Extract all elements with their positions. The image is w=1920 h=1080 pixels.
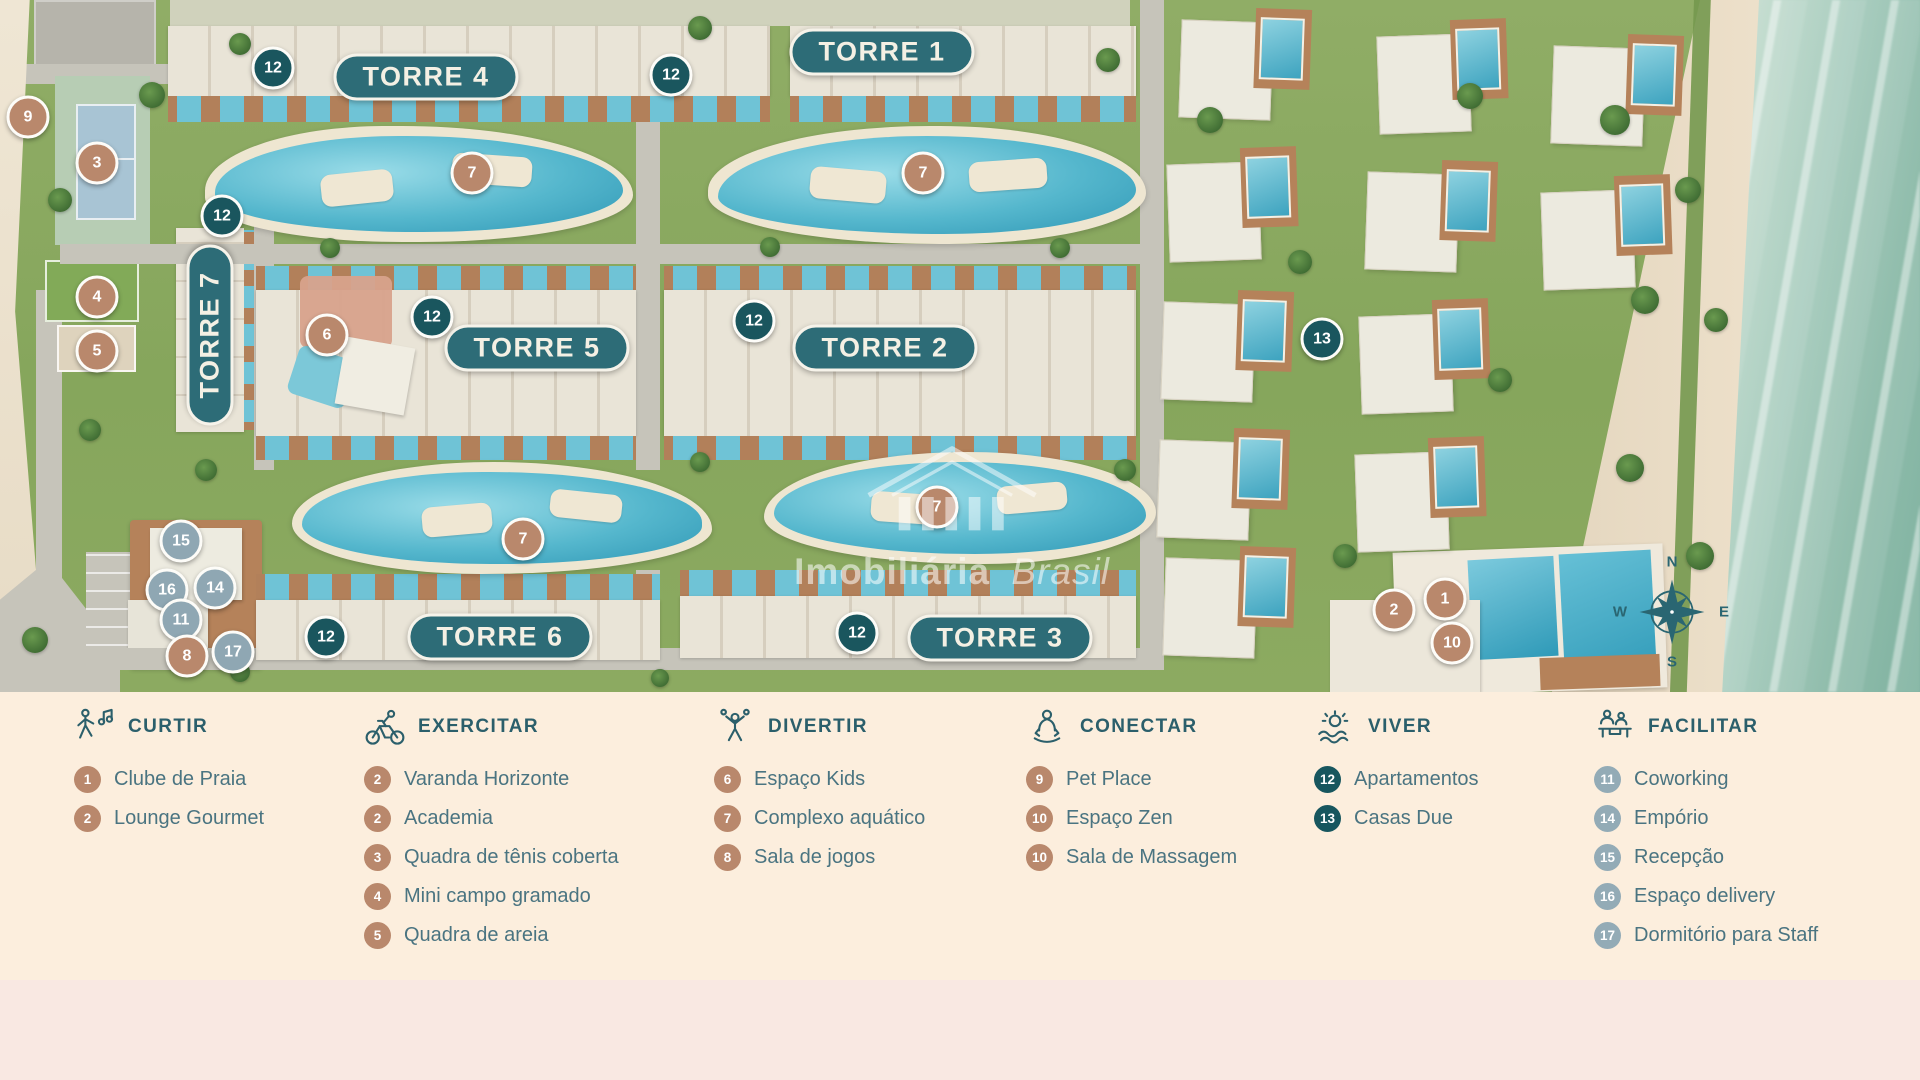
legend-badge-10: 10 xyxy=(1026,805,1053,832)
map-marker-10: 10 xyxy=(1431,622,1474,665)
legend-items: 2Varanda Horizonte2Academia3Quadra de tê… xyxy=(364,766,619,949)
legend-badge-3: 3 xyxy=(364,844,391,871)
legend-badge-11: 11 xyxy=(1594,766,1621,793)
legend-item: 16Espaço delivery xyxy=(1594,883,1818,910)
legend-title: FACILITAR xyxy=(1648,716,1758,738)
legend-items: 12Apartamentos13Casas Due xyxy=(1314,766,1479,832)
legend-title: CONECTAR xyxy=(1080,716,1197,738)
legend-badge-9: 9 xyxy=(1026,766,1053,793)
map-marker-7: 7 xyxy=(502,518,545,561)
aquatic-complex-deck xyxy=(292,462,712,574)
map-marker-5: 5 xyxy=(76,330,119,373)
legend-badge-13: 13 xyxy=(1314,805,1341,832)
legend-item: 9Pet Place xyxy=(1026,766,1237,793)
legend-item: 1Clube de Praia xyxy=(74,766,264,793)
aquatic-complex-deck xyxy=(764,452,1156,564)
casa-due-house xyxy=(1156,425,1310,555)
map-marker-7: 7 xyxy=(916,486,959,529)
lagoon-pool xyxy=(302,472,702,564)
legend-item-label: Pet Place xyxy=(1066,768,1152,791)
legend-title: EXERCITAR xyxy=(418,716,539,738)
map-marker-17: 17 xyxy=(212,631,255,674)
legend-item-label: Apartamentos xyxy=(1354,768,1479,791)
legend-badge-2: 2 xyxy=(364,766,391,793)
palm-tree xyxy=(1096,48,1120,72)
road-vertical-east xyxy=(1140,0,1164,670)
legend-section-conectar: CONECTAR9Pet Place10Espaço Zen10Sala de … xyxy=(1026,706,1237,871)
legend-items: 9Pet Place10Espaço Zen10Sala de Massagem xyxy=(1026,766,1237,871)
map-marker-12: 12 xyxy=(201,195,244,238)
palm-tree xyxy=(139,82,165,108)
legend-badge-14: 14 xyxy=(1594,805,1621,832)
compass-south-label: S xyxy=(1667,654,1677,671)
palm-tree xyxy=(690,452,710,472)
legend-section-facilitar: FACILITAR11Coworking14Empório15Recepção1… xyxy=(1594,706,1818,949)
legend-items: 11Coworking14Empório15Recepção16Espaço d… xyxy=(1594,766,1818,949)
tower-pill: TORRE 5 xyxy=(444,325,629,372)
casa-due-house xyxy=(1358,297,1512,427)
palm-tree xyxy=(229,33,251,55)
legend-item-label: Academia xyxy=(404,807,493,830)
compass-west-label: W xyxy=(1613,604,1627,621)
map-marker-4: 4 xyxy=(76,276,119,319)
map-marker-8: 8 xyxy=(166,635,209,678)
legend-badge-7: 7 xyxy=(714,805,741,832)
legend-item-label: Clube de Praia xyxy=(114,768,246,791)
juggler-icon xyxy=(714,706,756,748)
legend-item-label: Sala de Massagem xyxy=(1066,846,1237,869)
legend-item: 8Sala de jogos xyxy=(714,844,925,871)
legend-item-label: Empório xyxy=(1634,807,1708,830)
palm-tree xyxy=(320,238,340,258)
casa-due-house xyxy=(1540,173,1694,303)
tower-pill: TORRE 1 xyxy=(789,29,974,76)
map-marker-2: 2 xyxy=(1373,589,1416,632)
map-marker-12: 12 xyxy=(305,616,348,659)
legend-item: 15Recepção xyxy=(1594,844,1818,871)
casa-due-house xyxy=(1376,17,1530,147)
legend-item-label: Lounge Gourmet xyxy=(114,807,264,830)
legend-item-label: Sala de jogos xyxy=(754,846,875,869)
legend-item-label: Coworking xyxy=(1634,768,1728,791)
meditation-icon xyxy=(1026,706,1068,748)
legend-header: VIVER xyxy=(1314,706,1479,748)
entrance-building xyxy=(34,0,156,68)
legend-item: 10Sala de Massagem xyxy=(1026,844,1237,871)
legend-badge-16: 16 xyxy=(1594,883,1621,910)
concierge-icon xyxy=(1594,706,1636,748)
legend-item: 14Empório xyxy=(1594,805,1818,832)
legend-item-label: Recepção xyxy=(1634,846,1724,869)
palm-tree xyxy=(1457,83,1483,109)
palm-tree xyxy=(1704,308,1728,332)
road-vertical-center-a xyxy=(636,120,660,470)
map-marker-12: 12 xyxy=(411,296,454,339)
legend-item: 3Quadra de tênis coberta xyxy=(364,844,619,871)
legend-badge-12: 12 xyxy=(1314,766,1341,793)
compass-star-icon xyxy=(1636,576,1708,648)
casa-due-house xyxy=(1364,157,1518,287)
legend-header: DIVERTIR xyxy=(714,706,925,748)
tower-pill: TORRE 3 xyxy=(907,615,1092,662)
casa-due-house xyxy=(1354,435,1508,565)
palm-tree xyxy=(1050,238,1070,258)
legend-item: 12Apartamentos xyxy=(1314,766,1479,793)
legend-section-exercitar: EXERCITAR2Varanda Horizonte2Academia3Qua… xyxy=(364,706,619,949)
pool-strip-torre2-up xyxy=(664,266,1136,290)
legend-title: DIVERTIR xyxy=(768,716,868,738)
legend-header: CONECTAR xyxy=(1026,706,1237,748)
map-marker-7: 7 xyxy=(451,152,494,195)
lagoon-pool xyxy=(774,462,1146,554)
legend-item: 5Quadra de areia xyxy=(364,922,619,949)
legend-item: 17Dormitório para Staff xyxy=(1594,922,1818,949)
compass-east-label: E xyxy=(1719,604,1729,621)
palm-tree xyxy=(22,627,48,653)
sun-waves-icon xyxy=(1314,706,1356,748)
compass-north-label: N xyxy=(1667,554,1678,571)
dancing-person-icon xyxy=(74,706,116,748)
legend-items: 1Clube de Praia2Lounge Gourmet xyxy=(74,766,264,832)
aquatic-complex-deck xyxy=(205,126,633,242)
palm-tree xyxy=(1114,459,1136,481)
legend-item-label: Complexo aquático xyxy=(754,807,925,830)
legend-item: 2Lounge Gourmet xyxy=(74,805,264,832)
legend-item-label: Varanda Horizonte xyxy=(404,768,569,791)
map-marker-9: 9 xyxy=(7,96,50,139)
map-marker-13: 13 xyxy=(1301,318,1344,361)
palm-tree xyxy=(688,16,712,40)
map-marker-12: 12 xyxy=(836,612,879,655)
lagoon-pool xyxy=(215,136,623,232)
map-marker-12: 12 xyxy=(252,47,295,90)
beach-club-pool-small xyxy=(1467,556,1558,660)
palm-tree xyxy=(1197,107,1223,133)
legend-badge-17: 17 xyxy=(1594,922,1621,949)
kids-pergola xyxy=(335,336,416,415)
pool-strip-torre6 xyxy=(256,574,660,600)
legend-item: 13Casas Due xyxy=(1314,805,1479,832)
map-marker-14: 14 xyxy=(194,567,237,610)
palm-tree xyxy=(1616,454,1644,482)
legend-item-label: Espaço delivery xyxy=(1634,885,1775,908)
legend-item: 4Mini campo gramado xyxy=(364,883,619,910)
legend-item-label: Mini campo gramado xyxy=(404,885,591,908)
casa-due-house xyxy=(1550,31,1704,161)
legend-item-label: Quadra de tênis coberta xyxy=(404,846,619,869)
legend-item-label: Casas Due xyxy=(1354,807,1453,830)
palm-tree xyxy=(760,237,780,257)
legend-item: 11Coworking xyxy=(1594,766,1818,793)
casa-due-house xyxy=(1160,287,1314,417)
legend-title: CURTIR xyxy=(128,716,208,738)
legend-item-label: Dormitório para Staff xyxy=(1634,924,1818,947)
legend: CURTIR1Clube de Praia2Lounge GourmetEXER… xyxy=(0,692,1920,980)
palm-tree xyxy=(1631,286,1659,314)
legend-header: CURTIR xyxy=(74,706,264,748)
tower-pill: TORRE 4 xyxy=(333,54,518,101)
legend-badge-8: 8 xyxy=(714,844,741,871)
tower-pill: TORRE 7 xyxy=(187,244,234,425)
map-marker-7: 7 xyxy=(902,152,945,195)
pool-strip-torre3 xyxy=(680,570,1136,596)
legend-section-viver: VIVER12Apartamentos13Casas Due xyxy=(1314,706,1479,832)
top-promenade xyxy=(170,0,1130,26)
pool-strip-torre1 xyxy=(790,96,1136,122)
legend-item-label: Espaço Zen xyxy=(1066,807,1173,830)
map-marker-12: 12 xyxy=(733,300,776,343)
legend-item: 10Espaço Zen xyxy=(1026,805,1237,832)
tower-pill: TORRE 2 xyxy=(792,325,977,372)
masterplan-page: Imobiliária Brasil N E S W xyxy=(0,0,1920,1080)
legend-header: FACILITAR xyxy=(1594,706,1818,748)
legend-title: VIVER xyxy=(1368,716,1432,738)
palm-tree xyxy=(1488,368,1512,392)
legend-badge-4: 4 xyxy=(364,883,391,910)
palm-tree xyxy=(195,459,217,481)
legend-badge-10: 10 xyxy=(1026,844,1053,871)
legend-badge-15: 15 xyxy=(1594,844,1621,871)
map-marker-6: 6 xyxy=(306,314,349,357)
legend-item: 2Academia xyxy=(364,805,619,832)
legend-section-curtir: CURTIR1Clube de Praia2Lounge Gourmet xyxy=(74,706,264,832)
legend-badge-6: 6 xyxy=(714,766,741,793)
map-marker-1: 1 xyxy=(1424,578,1467,621)
legend-items: 6Espaço Kids7Complexo aquático8Sala de j… xyxy=(714,766,925,871)
legend-item-label: Espaço Kids xyxy=(754,768,865,791)
map-marker-15: 15 xyxy=(160,520,203,563)
compass-rose: N E S W xyxy=(1616,556,1728,668)
legend-badge-1: 1 xyxy=(74,766,101,793)
palm-tree xyxy=(79,419,101,441)
palm-tree xyxy=(1333,544,1357,568)
palm-tree xyxy=(651,669,669,687)
legend-item: 6Espaço Kids xyxy=(714,766,925,793)
legend-item: 2Varanda Horizonte xyxy=(364,766,619,793)
legend-item-label: Quadra de areia xyxy=(404,924,549,947)
legend-badge-2: 2 xyxy=(74,805,101,832)
legend-section-divertir: DIVERTIR6Espaço Kids7Complexo aquático8S… xyxy=(714,706,925,871)
pool-strip-torre5-down xyxy=(256,436,636,460)
tower-pill: TORRE 6 xyxy=(407,614,592,661)
site-map: Imobiliária Brasil N E S W xyxy=(0,0,1920,692)
footer-band xyxy=(0,980,1920,1080)
legend-item: 7Complexo aquático xyxy=(714,805,925,832)
cyclist-icon xyxy=(364,706,406,748)
palm-tree xyxy=(48,188,72,212)
legend-header: EXERCITAR xyxy=(364,706,619,748)
map-marker-12: 12 xyxy=(650,54,693,97)
palm-tree xyxy=(1288,250,1312,274)
legend-badge-5: 5 xyxy=(364,922,391,949)
casa-due-house xyxy=(1162,543,1316,673)
palm-tree xyxy=(1675,177,1701,203)
palm-tree xyxy=(1600,105,1630,135)
legend-badge-2: 2 xyxy=(364,805,391,832)
map-marker-3: 3 xyxy=(76,142,119,185)
